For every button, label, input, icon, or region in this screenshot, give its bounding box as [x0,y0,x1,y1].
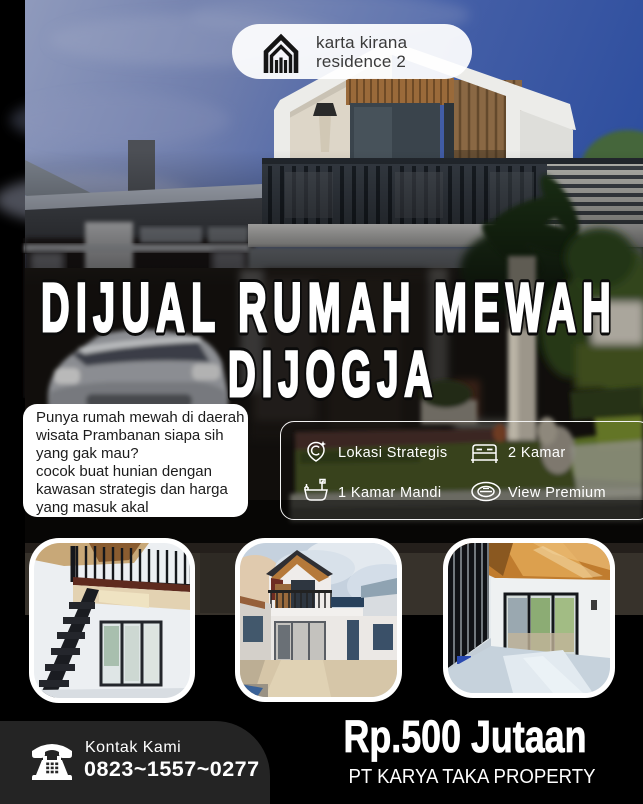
svg-text:DIJUAL RUMAH MEWAH: DIJUAL RUMAH MEWAH [41,269,617,346]
svg-text:Rp.500 Jutaan: Rp.500 Jutaan [344,712,587,762]
svg-text:DIJOGJA: DIJOGJA [228,338,438,410]
svg-text:PT KARYA TAKA PROPERTY: PT KARYA TAKA PROPERTY [349,766,596,788]
